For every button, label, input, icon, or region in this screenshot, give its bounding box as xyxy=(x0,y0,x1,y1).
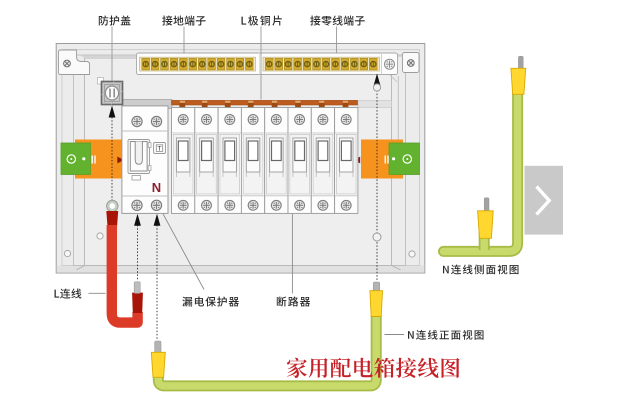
svg-text:N: N xyxy=(152,180,161,195)
svg-text:T: T xyxy=(158,146,162,153)
